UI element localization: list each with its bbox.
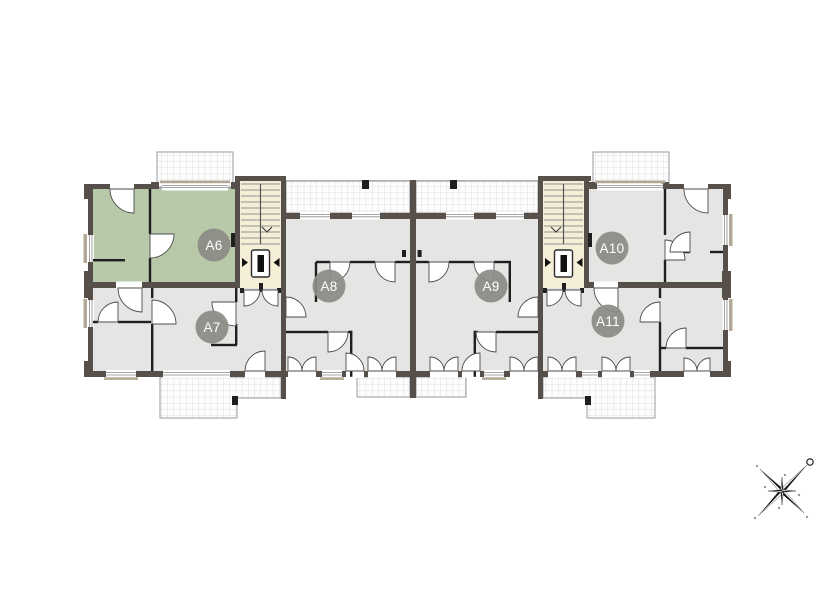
unit-a9-area[interactable]	[416, 219, 538, 371]
terrace-top-middle-left	[286, 181, 410, 213]
terrace-bottom-middle-left	[357, 377, 410, 397]
terrace-bottom-right	[543, 377, 655, 418]
unit-label-a7[interactable]: A7	[196, 311, 229, 344]
unit-label-a6[interactable]: A6	[198, 229, 231, 262]
terrace-top-middle-right	[416, 181, 538, 213]
unit-label-a10[interactable]: A10	[596, 232, 629, 265]
compass-rose-icon	[754, 459, 813, 519]
svg-text:A10: A10	[600, 241, 625, 256]
terrace-bottom-left	[160, 377, 281, 418]
svg-text:A7: A7	[203, 320, 220, 335]
unit-label-a9[interactable]: A9	[475, 270, 508, 303]
unit-a8-area[interactable]	[286, 219, 410, 371]
floor-plan-page: A6 A7 A8 A9 A10 A11	[0, 0, 815, 591]
unit-label-a8[interactable]: A8	[313, 270, 346, 303]
terrace-top-right	[593, 152, 669, 189]
svg-text:A9: A9	[482, 279, 499, 294]
svg-text:A6: A6	[205, 238, 222, 253]
terrace-bottom-middle-right	[416, 377, 466, 397]
unit-label-a11[interactable]: A11	[592, 305, 625, 338]
terrace-top-left	[157, 152, 233, 189]
north-marker-icon	[807, 459, 813, 465]
floor-plan-drawing: A6 A7 A8 A9 A10 A11	[0, 0, 815, 591]
svg-text:A11: A11	[596, 314, 620, 329]
svg-text:A8: A8	[320, 279, 337, 294]
